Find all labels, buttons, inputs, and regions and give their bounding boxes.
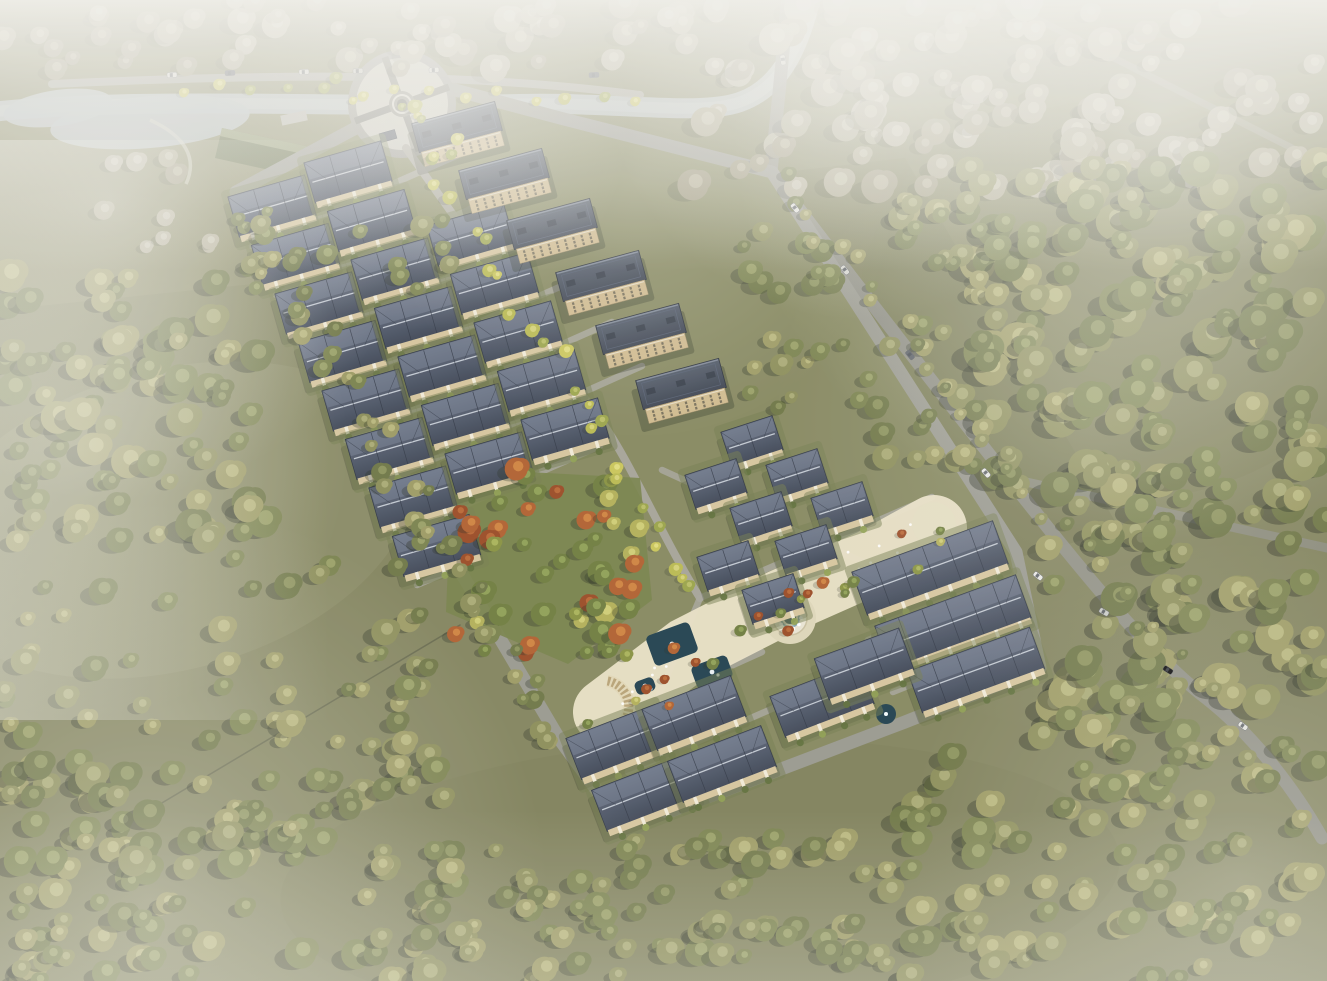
aerial-site-rendering [0,0,1327,981]
rendering-canvas [0,0,1327,981]
fog-overlay [0,0,1327,981]
